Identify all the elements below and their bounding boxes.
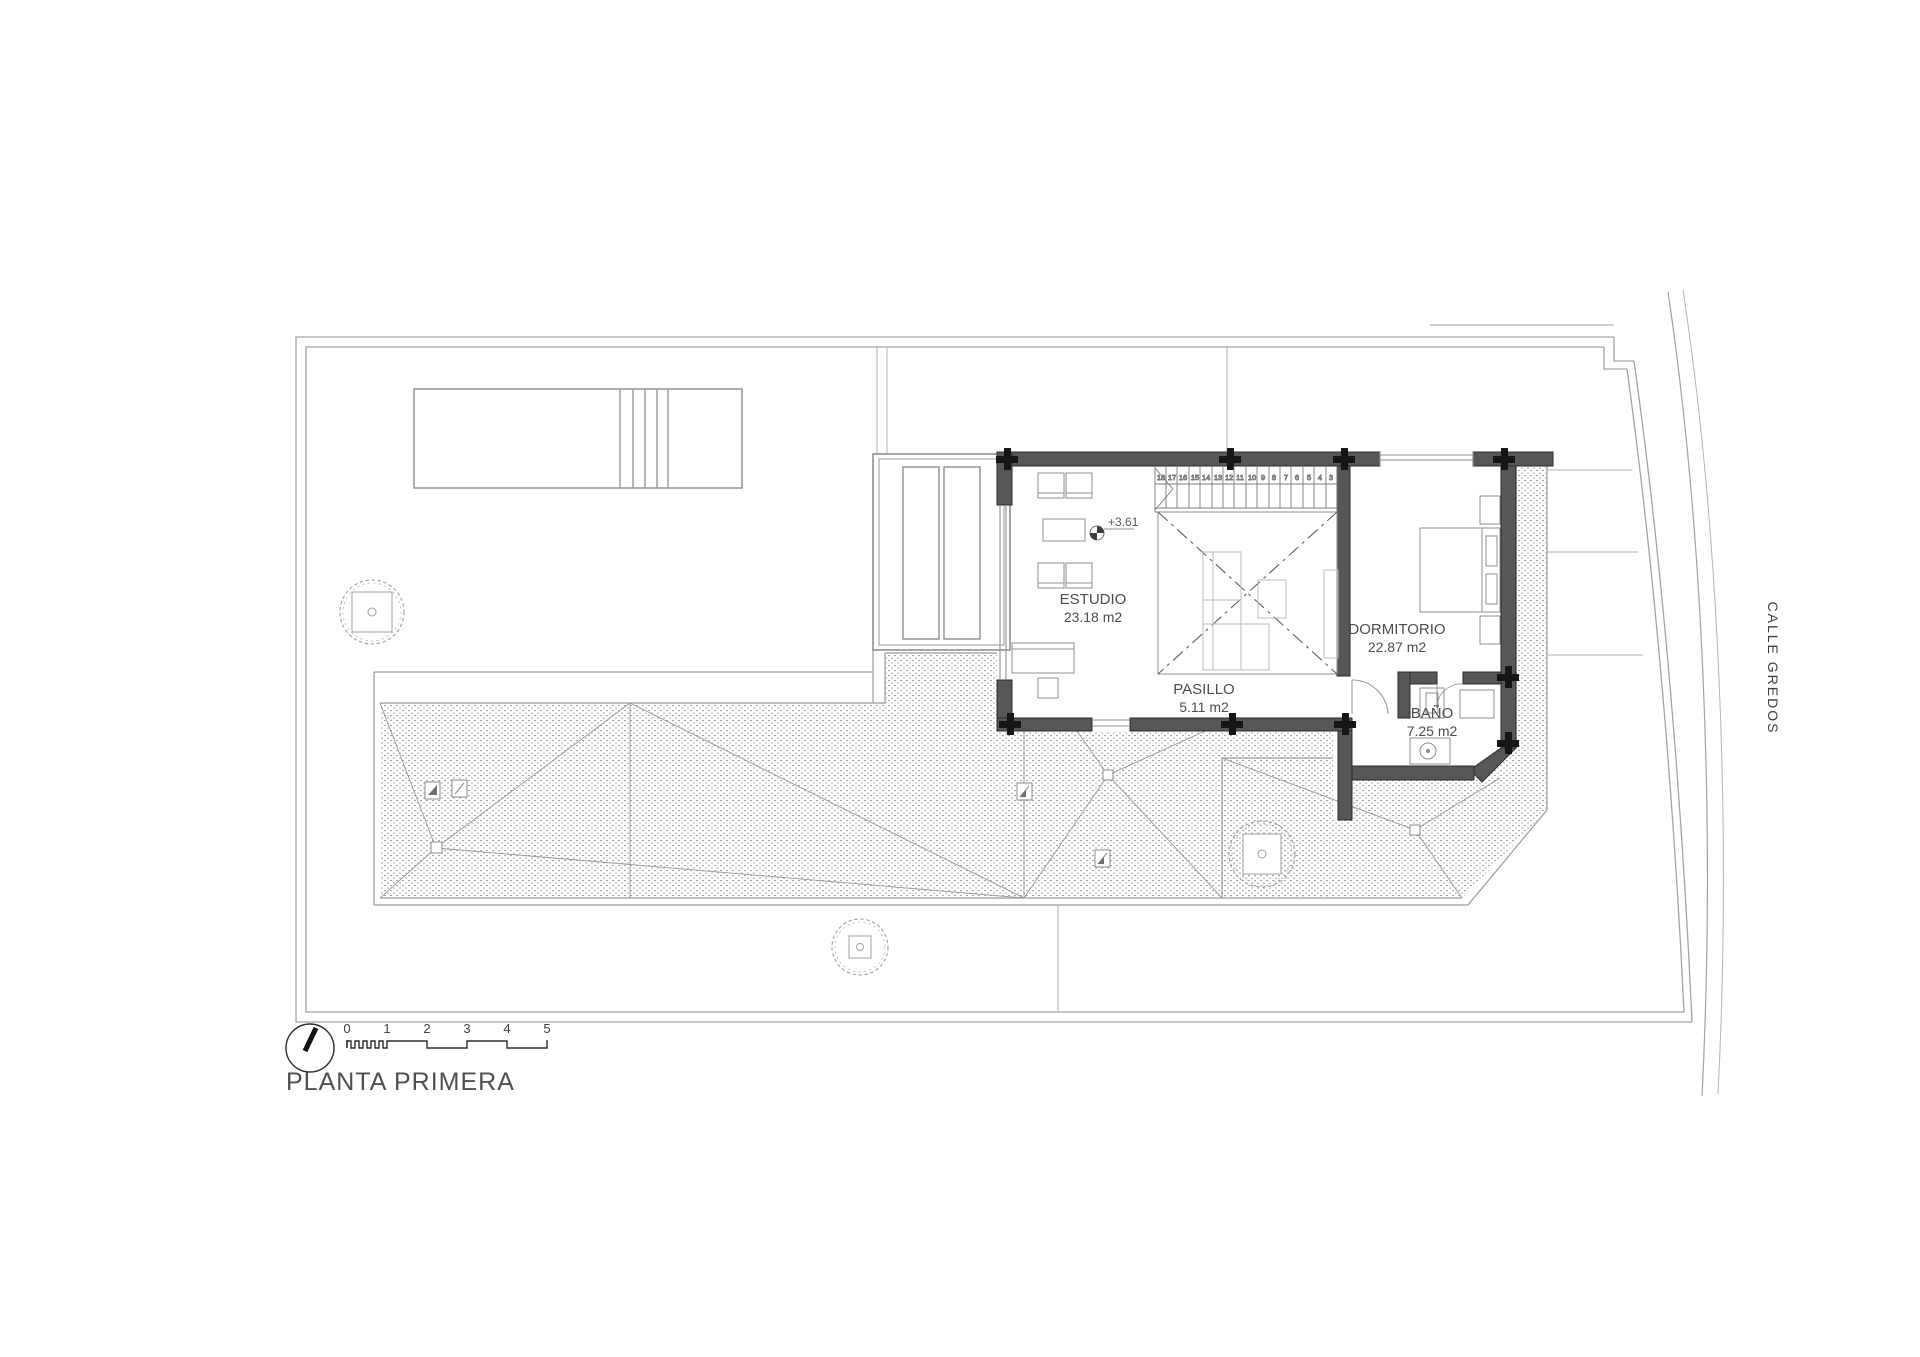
svg-text:2: 2 bbox=[423, 1021, 430, 1036]
north-arrow-icon bbox=[286, 1024, 334, 1072]
ghost-furniture bbox=[1203, 552, 1338, 670]
room-divider-wall bbox=[1337, 466, 1350, 676]
column-cross bbox=[1334, 713, 1356, 735]
svg-text:14: 14 bbox=[1202, 473, 1210, 482]
rooflight-icon bbox=[1017, 783, 1032, 800]
stair-numbers: 18 17 16 15 14 13 12 11 10 9 8 7 6 5 4 3 bbox=[1157, 473, 1333, 482]
skylight bbox=[944, 467, 980, 639]
svg-text:9: 9 bbox=[1261, 473, 1265, 482]
room-label-pasillo: PASILLO bbox=[1173, 681, 1234, 698]
scale-bar: 0 1 2 3 4 5 bbox=[343, 1021, 550, 1048]
tree-icon bbox=[832, 919, 888, 975]
svg-text:12: 12 bbox=[1225, 473, 1233, 482]
floor-plan-drawing: CALLE GREDOS bbox=[0, 0, 1920, 1357]
drain-icon bbox=[1410, 825, 1420, 835]
desk bbox=[1038, 473, 1092, 498]
chair bbox=[1038, 678, 1058, 698]
svg-text:18: 18 bbox=[1157, 473, 1165, 482]
desk bbox=[1012, 643, 1074, 673]
street-label: CALLE GREDOS bbox=[1765, 602, 1781, 735]
room-area-pasillo: 5.11 m2 bbox=[1179, 699, 1229, 715]
table bbox=[1043, 519, 1085, 541]
shower bbox=[1410, 738, 1450, 764]
skylight bbox=[903, 467, 939, 639]
bath-south-wall bbox=[1352, 766, 1474, 780]
svg-text:8: 8 bbox=[1272, 473, 1276, 482]
room-area-bano: 7.25 m2 bbox=[1407, 723, 1458, 739]
rooflight-icon bbox=[425, 782, 440, 799]
terrace-hatch-porch-band bbox=[885, 653, 997, 898]
svg-text:5: 5 bbox=[543, 1021, 550, 1036]
terrace-hatch-main bbox=[380, 703, 885, 898]
svg-text:3: 3 bbox=[1329, 473, 1333, 482]
room-label-dormitorio: DORMITORIO bbox=[1348, 621, 1445, 638]
street-calle-gredos: CALLE GREDOS bbox=[1668, 290, 1781, 1096]
level-marker-label: +3.61 bbox=[1108, 515, 1139, 529]
svg-text:16: 16 bbox=[1179, 473, 1187, 482]
door-south-terrace bbox=[1092, 720, 1130, 726]
room-label-estudio: ESTUDIO bbox=[1060, 591, 1127, 608]
svg-text:15: 15 bbox=[1191, 473, 1199, 482]
rooflight-icon bbox=[1095, 850, 1110, 867]
door-dormitorio bbox=[1352, 680, 1388, 714]
room-area-dormitorio: 22.87 m2 bbox=[1368, 639, 1427, 655]
desk bbox=[1038, 563, 1092, 588]
nightstand bbox=[1480, 616, 1500, 644]
svg-text:0: 0 bbox=[343, 1021, 350, 1036]
svg-text:5: 5 bbox=[1307, 473, 1311, 482]
svg-text:11: 11 bbox=[1236, 473, 1244, 482]
bath-north-wall bbox=[1463, 672, 1501, 684]
east-wall bbox=[1501, 466, 1516, 748]
svg-text:1: 1 bbox=[383, 1021, 390, 1036]
title-block: 0 1 2 3 4 5 PLANTA PRIMERA bbox=[286, 1021, 551, 1096]
pool bbox=[414, 389, 742, 488]
level-marker: +3.61 bbox=[1090, 515, 1139, 540]
tree-icon bbox=[340, 580, 404, 644]
bed bbox=[1420, 528, 1500, 612]
column-cross bbox=[1219, 448, 1241, 470]
staircase: 18 17 16 15 14 13 12 11 10 9 8 7 6 5 4 3 bbox=[1155, 466, 1337, 512]
svg-text:10: 10 bbox=[1248, 473, 1256, 482]
stair-void bbox=[1158, 512, 1338, 674]
room-label-bano: BAÑO bbox=[1411, 705, 1454, 722]
nightstand bbox=[1480, 496, 1500, 524]
svg-text:4: 4 bbox=[503, 1021, 510, 1036]
street-curb-line bbox=[1668, 292, 1707, 1096]
svg-text:3: 3 bbox=[463, 1021, 470, 1036]
svg-text:6: 6 bbox=[1295, 473, 1299, 482]
column-cross bbox=[1333, 448, 1355, 470]
drawing-title: PLANTA PRIMERA bbox=[286, 1068, 515, 1096]
sink-vanity bbox=[1460, 690, 1494, 718]
terrace-hatch-east-band bbox=[1516, 466, 1547, 748]
drain-icon bbox=[431, 842, 442, 853]
floor-plan-sheet: CALLE GREDOS bbox=[0, 0, 1920, 1357]
drain-icon bbox=[1103, 770, 1113, 780]
north-wall bbox=[997, 452, 1380, 466]
estudio-furniture bbox=[1012, 473, 1092, 698]
svg-text:4: 4 bbox=[1318, 473, 1322, 482]
window-north-dormitorio bbox=[1380, 452, 1473, 466]
rooflight-icon bbox=[452, 780, 467, 797]
south-stub-wall bbox=[1338, 731, 1352, 820]
room-area-estudio: 23.18 m2 bbox=[1064, 609, 1123, 625]
porch-skylight-room bbox=[873, 454, 1010, 650]
svg-text:17: 17 bbox=[1168, 473, 1176, 482]
svg-text:7: 7 bbox=[1284, 473, 1288, 482]
bath-west-stub bbox=[1398, 672, 1410, 718]
svg-text:13: 13 bbox=[1214, 473, 1222, 482]
